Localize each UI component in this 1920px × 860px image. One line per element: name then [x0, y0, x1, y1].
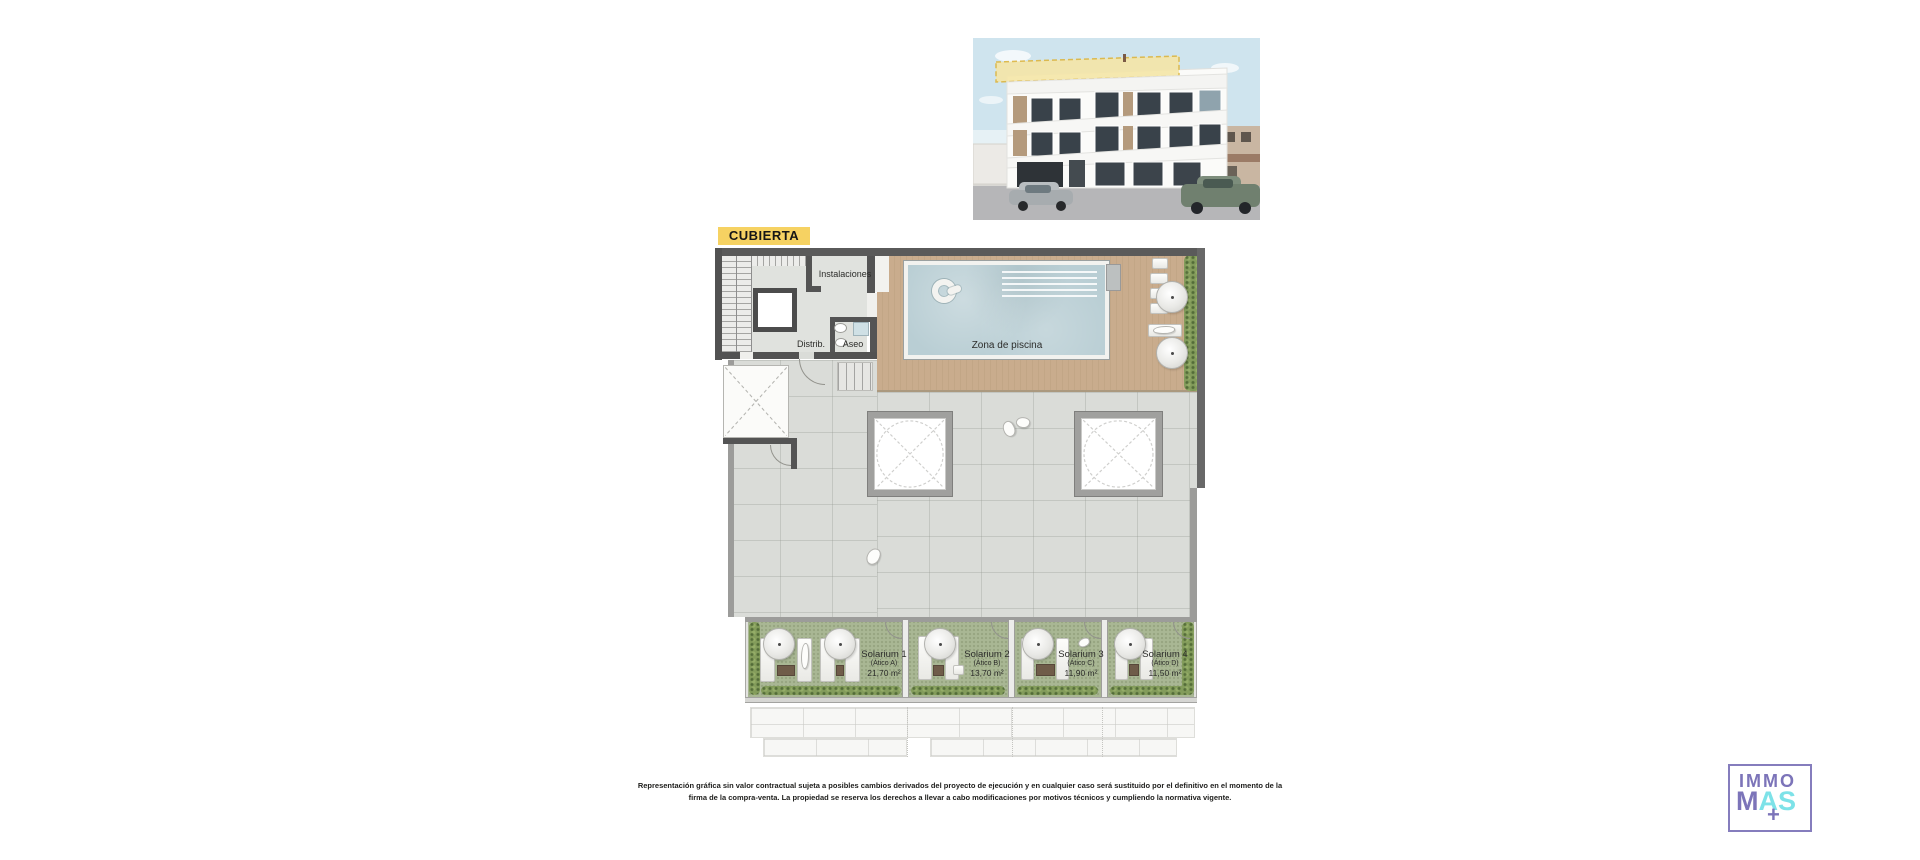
solarium-3-area: 11,90 m²: [1046, 668, 1116, 678]
right-wall-step-cover: [1197, 488, 1207, 619]
stairs: [722, 256, 752, 352]
solarium-4-name: Solarium 4: [1130, 650, 1200, 660]
solarium-4-unit: (Ático D): [1130, 660, 1200, 668]
lap-line: [1002, 277, 1097, 279]
logo-plus-icon: +: [1767, 802, 1780, 828]
lap-line: [1002, 295, 1097, 297]
solarium-3-name: Solarium 3: [1046, 650, 1116, 660]
solarium-top-wall: [745, 617, 1197, 622]
solarium-1-label: Solarium 1 (Ático A) 21,70 m²: [849, 650, 919, 678]
wall: [806, 286, 821, 292]
solarium-3-unit: (Ático C): [1046, 660, 1116, 668]
solarium-4-label: Solarium 4 (Ático D) 11,50 m²: [1130, 650, 1200, 678]
right-outer-wall-lower: [1190, 488, 1197, 619]
solarium-2-label: Solarium 2 (Ático B) 13,70 m²: [952, 650, 1022, 678]
lightwell-cross: [724, 366, 788, 437]
distrib-label: Distrib.: [785, 339, 837, 349]
lounger-table: [777, 665, 795, 676]
building-rendering-drawing: [973, 38, 1260, 220]
shower-icon: [853, 322, 869, 336]
stairs-divider: [736, 256, 737, 352]
disclaimer: Representación gráfica sin valor contrac…: [0, 780, 1920, 803]
door-gap: [740, 352, 753, 359]
pool-steps: [1106, 264, 1121, 291]
instalaciones-door-gap: [867, 293, 877, 317]
lightwell: [723, 365, 789, 438]
immo-mas-logo: IMMO MAS +: [1728, 764, 1812, 832]
skylight-glyph: [874, 418, 946, 490]
plan-title: CUBIERTA: [718, 227, 810, 245]
projection-line: [1102, 707, 1103, 757]
lounger-table: [933, 665, 944, 676]
disclaimer-line-2: firma de la compra-venta. La propiedad s…: [0, 792, 1920, 804]
lower-floor-outline: [763, 738, 907, 757]
util-left-wall: [715, 248, 722, 360]
building-rendering: [973, 38, 1260, 220]
skylight: [868, 412, 952, 496]
lap-line: [1002, 283, 1097, 285]
solarium-2-unit: (Ático B): [952, 660, 1022, 668]
logo-mas-text: MAS: [1736, 786, 1796, 817]
lower-floor-outline: [930, 738, 1177, 757]
right-outer-wall: [1197, 248, 1205, 488]
disclaimer-line-1: Representación gráfica sin valor contrac…: [0, 780, 1920, 792]
side-table: [1152, 258, 1168, 269]
projection-line: [907, 707, 908, 757]
solarium-greenery: [1110, 686, 1190, 695]
floor-plan: Instalaciones Distrib. Aseo Zona de pisc…: [715, 245, 1207, 762]
deck-access-steps: [837, 362, 873, 391]
lap-line: [1002, 271, 1097, 273]
door-gap: [799, 352, 814, 359]
projection-line: [1012, 707, 1013, 757]
instalaciones-label: Instalaciones: [809, 269, 881, 279]
solarium-3-label: Solarium 3 (Ático C) 11,90 m²: [1046, 650, 1116, 678]
skylight-glyph: [1081, 418, 1156, 490]
wall: [723, 438, 797, 444]
logo-letter-s: S: [1778, 786, 1796, 816]
parasol-icon: [1156, 337, 1188, 369]
parasol-icon: [763, 628, 795, 660]
logo-letter-m: M: [1736, 786, 1759, 816]
solarium-greenery: [761, 686, 901, 695]
solarium-2-area: 13,70 m²: [952, 668, 1022, 678]
solarium-4-area: 11,50 m²: [1130, 668, 1200, 678]
solarium-bottom-wall: [745, 697, 1197, 703]
solarium-2-name: Solarium 2: [952, 650, 1022, 660]
solarium-1-name: Solarium 1: [849, 650, 919, 660]
top-outer-wall: [715, 248, 1205, 256]
toilet-icon: [834, 323, 847, 333]
lower-floor-outline: [750, 707, 1195, 738]
elevator-shaft: [753, 288, 797, 332]
lounger-table: [836, 665, 844, 676]
lap-line: [1002, 289, 1097, 291]
pool-float-icon: [929, 276, 960, 307]
solarium-greenery: [911, 686, 1005, 695]
parasol-icon: [1156, 281, 1188, 313]
solarium-1-unit: (Ático A): [849, 660, 919, 668]
pool-area-label: Zona de piscina: [957, 340, 1057, 351]
skylight: [1075, 412, 1162, 496]
solarium-1-area: 21,70 m²: [849, 668, 919, 678]
wall: [791, 444, 797, 469]
solarium-greenery: [1017, 686, 1098, 695]
solarium-greenery: [749, 622, 760, 695]
aseo-label: Aseo: [835, 339, 871, 349]
wall: [870, 317, 877, 352]
stairs-upper-flight: [752, 256, 806, 266]
